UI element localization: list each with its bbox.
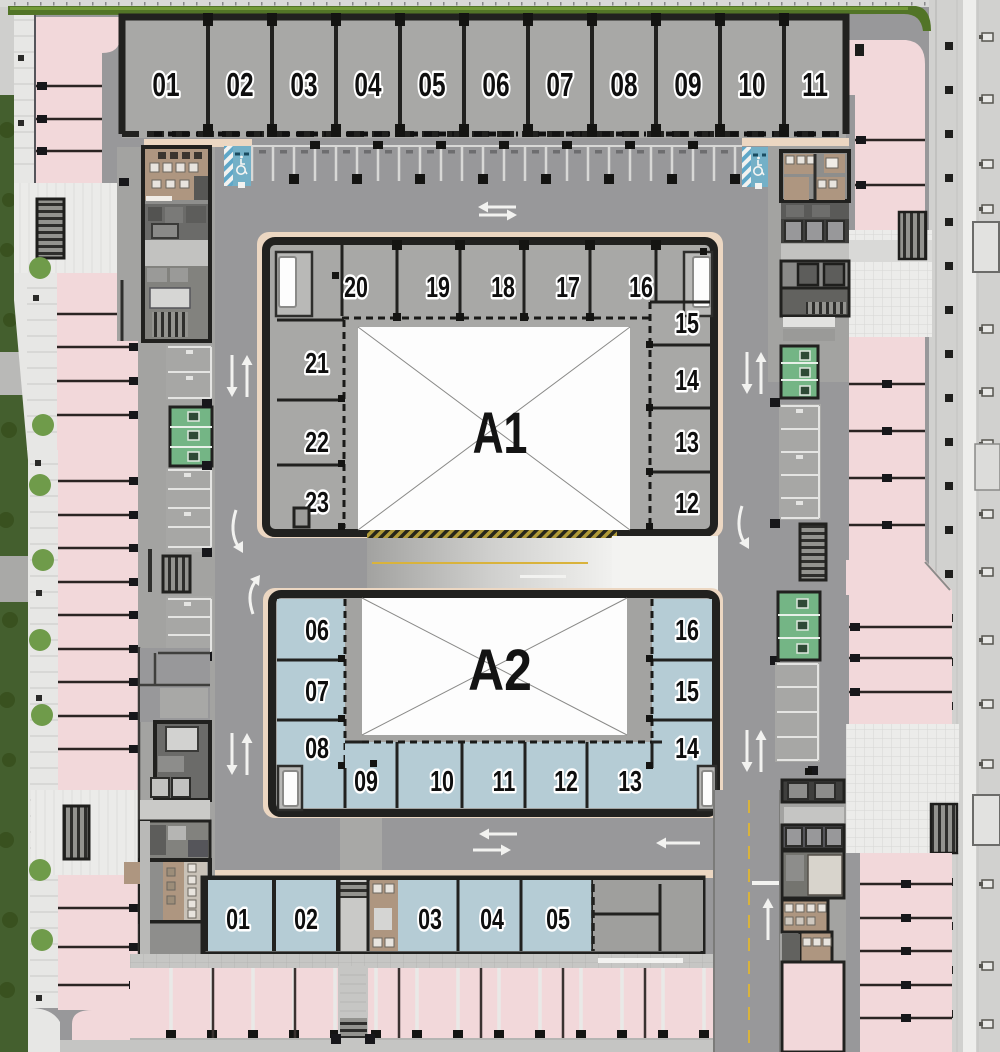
- svg-text:02: 02: [226, 68, 253, 104]
- svg-text:18: 18: [491, 272, 515, 304]
- svg-text:13: 13: [618, 766, 642, 798]
- svg-text:05: 05: [418, 68, 445, 104]
- svg-text:03: 03: [290, 68, 317, 104]
- svg-text:01: 01: [152, 68, 179, 104]
- svg-text:22: 22: [305, 427, 329, 459]
- svg-text:10: 10: [738, 68, 765, 104]
- svg-text:01: 01: [226, 904, 250, 936]
- svg-text:11: 11: [802, 68, 828, 104]
- svg-text:08: 08: [305, 733, 329, 765]
- svg-text:05: 05: [546, 904, 570, 936]
- svg-text:21: 21: [305, 348, 329, 380]
- svg-text:15: 15: [675, 676, 699, 708]
- svg-text:13: 13: [675, 427, 699, 459]
- svg-text:07: 07: [305, 676, 329, 708]
- svg-text:07: 07: [546, 68, 573, 104]
- svg-text:08: 08: [610, 68, 637, 104]
- svg-text:04: 04: [354, 68, 381, 104]
- svg-text:11: 11: [493, 766, 516, 798]
- svg-text:03: 03: [418, 904, 442, 936]
- svg-text:A1: A1: [473, 401, 528, 466]
- svg-text:A2: A2: [468, 639, 532, 703]
- svg-text:10: 10: [430, 766, 454, 798]
- svg-text:20: 20: [344, 272, 368, 304]
- svg-text:16: 16: [629, 272, 653, 304]
- svg-text:09: 09: [674, 68, 701, 104]
- svg-text:12: 12: [675, 488, 699, 520]
- svg-text:16: 16: [675, 615, 699, 647]
- svg-text:14: 14: [675, 733, 700, 765]
- svg-text:06: 06: [482, 68, 509, 104]
- svg-text:04: 04: [480, 904, 505, 936]
- svg-text:15: 15: [675, 308, 699, 340]
- svg-text:12: 12: [554, 766, 578, 798]
- svg-text:14: 14: [675, 365, 700, 397]
- svg-text:02: 02: [294, 904, 318, 936]
- svg-text:06: 06: [305, 615, 329, 647]
- svg-text:19: 19: [426, 272, 450, 304]
- svg-text:17: 17: [556, 272, 580, 304]
- svg-text:09: 09: [354, 766, 378, 798]
